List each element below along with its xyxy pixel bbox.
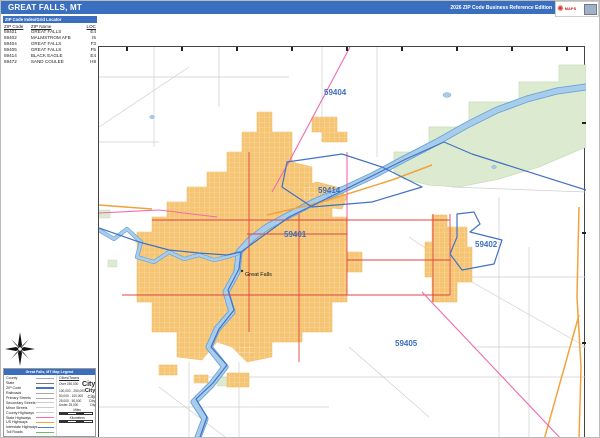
state-highway-swatch — [36, 417, 54, 418]
secondary-street-swatch — [36, 402, 54, 403]
zip-index-title: ZIP Code Index/Grid Locator — [3, 16, 97, 23]
table-row: 59472 SAND COULEE H8 — [3, 59, 97, 65]
state-line-swatch — [36, 383, 54, 384]
us-highway-swatch — [36, 422, 54, 423]
edition-label: 2026 ZIP Code Business Reference Edition — [450, 5, 552, 11]
county-highway-swatch — [36, 412, 54, 413]
legend-cities-column: Cities/Towns Over 250,000City 100,000 - … — [56, 375, 97, 436]
scale-bar-km: Kilometers — [59, 416, 95, 423]
zip-label-59402: 59402 — [475, 240, 498, 249]
city-class: Under 25,000City — [59, 403, 95, 407]
map-svg: 59404 59414 59401 59402 59405 Great Fall… — [99, 47, 586, 438]
city-label: Great Falls — [245, 272, 272, 278]
railroad-swatch — [36, 393, 54, 394]
zip-index-table: ZIP Code ZIP Name LOC 59401 GREAT FALLS … — [3, 24, 97, 65]
zip-label-59401: 59401 — [284, 230, 307, 239]
county-line-swatch — [36, 378, 54, 379]
inset-thumbnail — [584, 4, 597, 15]
zip-label-59414: 59414 — [318, 186, 341, 195]
toll-road-swatch — [36, 432, 54, 433]
primary-street-swatch — [36, 398, 54, 399]
brand-name: MAPS — [565, 7, 577, 11]
globe-icon: ✺ — [557, 5, 564, 13]
compass-rose — [5, 332, 35, 371]
cities-heading: Cities/Towns — [59, 376, 95, 380]
legend-panel: Great Falls, MT Map Legend County State … — [3, 368, 96, 437]
minor-street-swatch — [36, 407, 54, 408]
map-page: GREAT FALLS, MT 2026 ZIP Code Business R… — [0, 0, 600, 438]
page-title: GREAT FALLS, MT — [1, 3, 82, 12]
zip-label-59404: 59404 — [324, 88, 347, 97]
zip-index-panel: ZIP Code Index/Grid Locator ZIP Code ZIP… — [3, 16, 97, 65]
interstate-swatch — [38, 427, 54, 428]
north-arrow-icon — [5, 332, 35, 366]
zip-line-swatch — [36, 387, 54, 389]
legend-symbols-column: County State ZIP Code Railroads Primary … — [4, 375, 56, 436]
zip-label-59405: 59405 — [395, 339, 418, 348]
scale-bar-miles: Miles — [59, 408, 95, 415]
city-marker — [241, 270, 243, 272]
header-bar: GREAT FALLS, MT 2026 ZIP Code Business R… — [1, 1, 557, 14]
marketmaps-logo: ✺ MAPS — [555, 1, 599, 17]
city-class: Over 250,000City — [59, 381, 95, 388]
legend-item: Toll Roads — [6, 430, 54, 435]
map-canvas: 59404 59414 59401 59402 59405 Great Fall… — [98, 46, 585, 438]
